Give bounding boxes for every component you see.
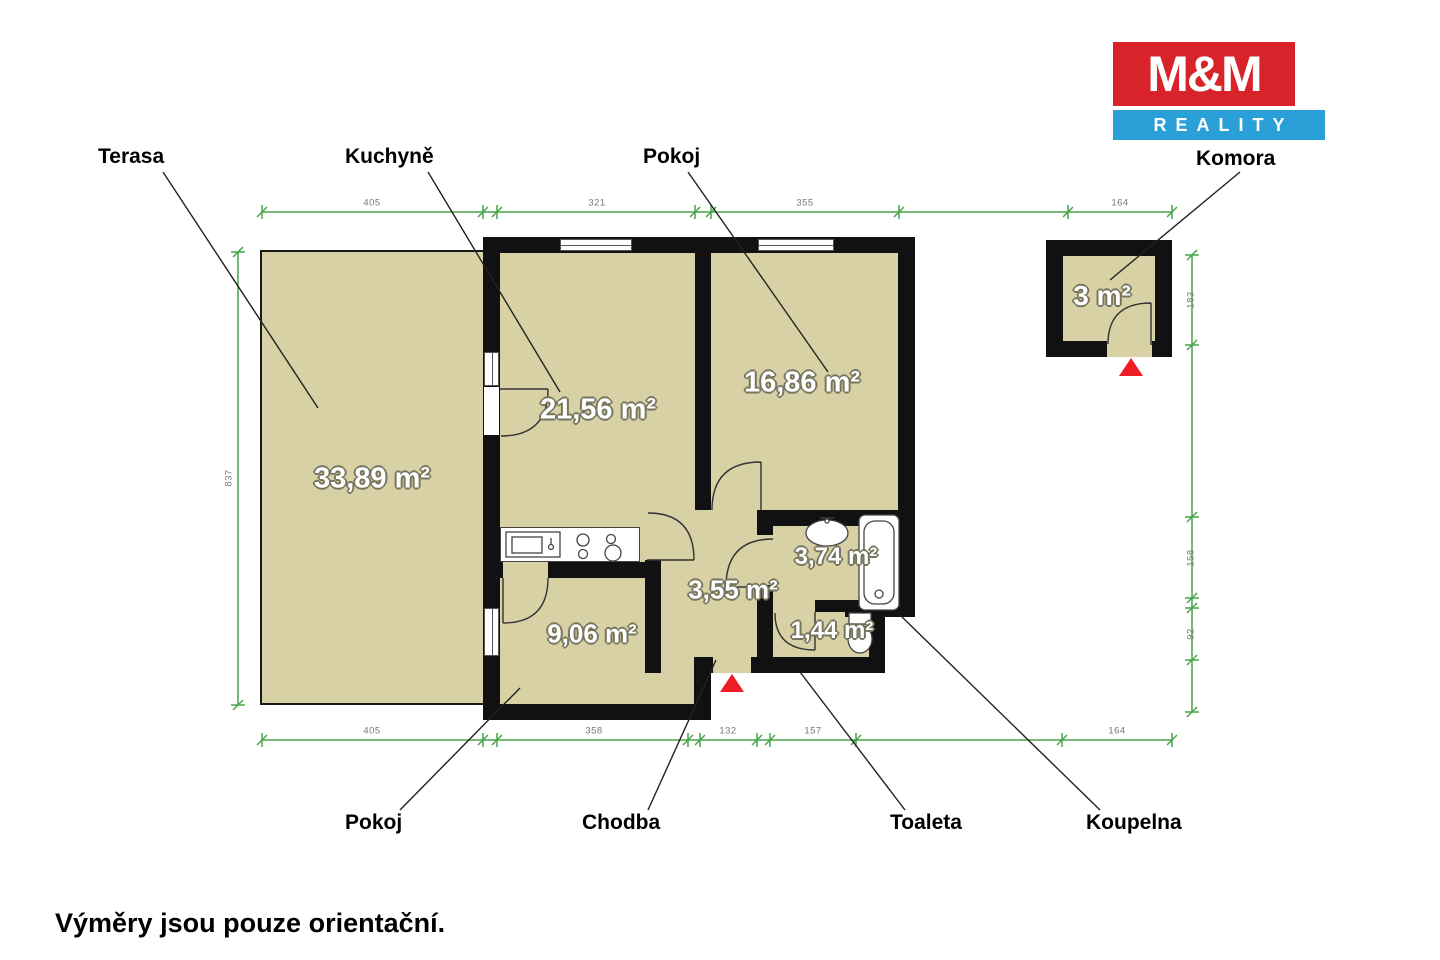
area-label-koupelna: 3,74 m²	[795, 543, 878, 571]
logo-mm-text: M&M	[1147, 45, 1260, 103]
dimension-line-right	[1185, 250, 1199, 717]
wall-segment	[548, 562, 661, 578]
callout-koupelna: Koupelna	[1086, 811, 1182, 835]
mm-reality-logo-subtitle: REALITY	[1113, 110, 1325, 140]
wall-segment	[1046, 341, 1107, 357]
dim-label-bottom-1: 405	[363, 726, 380, 737]
disclaimer-note: Výměry jsou pouze orientační.	[55, 908, 445, 939]
dim-label-bottom-2: 358	[585, 726, 602, 737]
wall-segment	[761, 510, 899, 526]
callout-toaleta: Toaleta	[890, 811, 962, 835]
wall-segment	[1152, 341, 1172, 357]
dim-label-top-4: 164	[1111, 198, 1128, 209]
callout-komora: Komora	[1196, 147, 1275, 171]
area-label-pokoj-bottom: 9,06 m²	[547, 619, 637, 650]
area-label-pokoj-top: 16,86 m²	[744, 367, 860, 400]
dim-label-top-2: 321	[588, 198, 605, 209]
dim-label-bottom-3: 132	[719, 726, 736, 737]
dim-label-right-2: 158	[1186, 549, 1197, 566]
callout-pokoj-top: Pokoj	[643, 145, 700, 169]
callout-chodba: Chodba	[582, 811, 660, 835]
wall-segment	[694, 673, 711, 720]
entrance-arrow-icon	[720, 674, 744, 692]
dimension-line-top	[257, 205, 1177, 219]
wall-segment	[1046, 240, 1063, 357]
area-label-kuchyne: 21,56 m²	[540, 394, 656, 427]
terrace-door-opening	[484, 387, 499, 435]
callout-pokoj-bottom: Pokoj	[345, 811, 402, 835]
window	[484, 608, 499, 656]
mm-reality-logo: M&M	[1113, 42, 1295, 106]
wall-segment	[898, 237, 915, 617]
area-label-terasa: 33,89 m²	[314, 463, 430, 496]
logo-reality-text: REALITY	[1144, 115, 1293, 136]
wall-segment	[1155, 240, 1172, 357]
wall-segment	[751, 657, 885, 673]
dim-label-top-3: 355	[796, 198, 813, 209]
wall-segment	[757, 510, 773, 535]
window	[484, 352, 499, 386]
dim-label-bottom-4: 157	[804, 726, 821, 737]
dim-label-right-3: 92	[1186, 628, 1197, 640]
window	[758, 239, 834, 251]
area-label-toaleta: 1,44 m²	[791, 617, 874, 645]
window	[560, 239, 632, 251]
dim-label-bottom-5: 164	[1108, 726, 1125, 737]
dimension-line-bottom	[257, 733, 1177, 747]
wall-segment	[483, 562, 503, 578]
dim-label-right-1: 183	[1186, 291, 1197, 308]
wall-segment	[694, 657, 713, 673]
area-label-komora: 3 m²	[1073, 280, 1131, 312]
wall-segment	[483, 237, 915, 253]
callout-terasa: Terasa	[98, 145, 164, 169]
wall-segment	[1046, 240, 1172, 256]
dim-label-top-1: 405	[363, 198, 380, 209]
kitchen-counter	[500, 527, 640, 562]
dim-label-left-1: 837	[224, 469, 235, 486]
komora-entrance-arrow-icon	[1119, 358, 1143, 376]
floor-plan-page: M&M REALITY	[0, 0, 1440, 960]
callout-kuchyne: Kuchyně	[345, 145, 434, 169]
wall-segment	[483, 704, 711, 720]
wall-segment	[695, 253, 711, 510]
komora-door-threshold	[1107, 341, 1152, 357]
area-label-chodba: 3,55 m²	[688, 575, 778, 606]
